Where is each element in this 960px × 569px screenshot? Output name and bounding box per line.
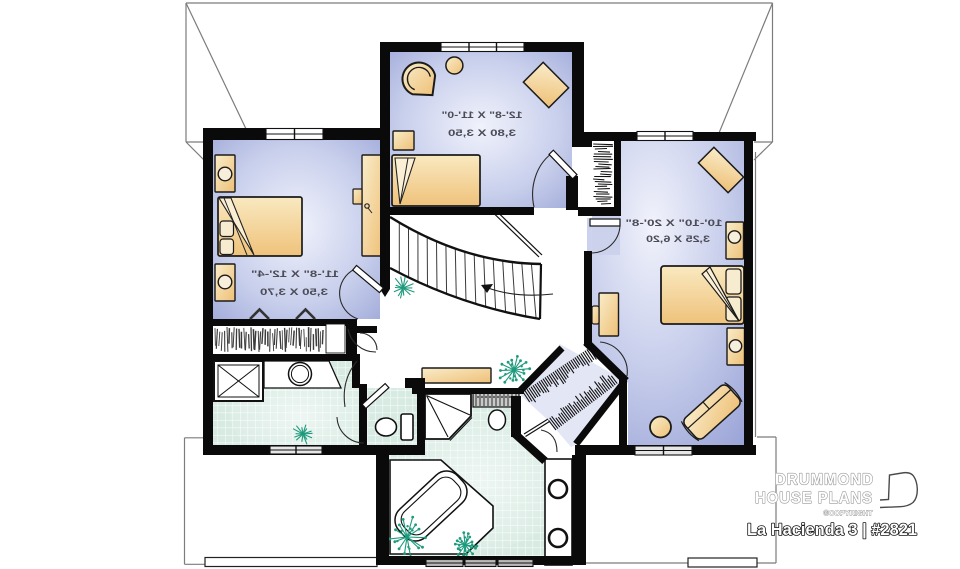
- svg-text:11'-8" X 12'-4": 11'-8" X 12'-4": [251, 269, 339, 280]
- svg-text:©COPYRIGHT: ©COPYRIGHT: [824, 509, 873, 518]
- svg-text:La Hacienda 3 | #2821: La Hacienda 3 | #2821: [747, 521, 917, 539]
- svg-text:12'-8" X 11'-0": 12'-8" X 11'-0": [442, 110, 523, 121]
- svg-text:DRUMMOND: DRUMMOND: [775, 472, 874, 489]
- svg-text:10'-10" X 20'-8": 10'-10" X 20'-8": [626, 218, 723, 229]
- svg-text:3,80 X 3,50: 3,80 X 3,50: [448, 128, 516, 139]
- svg-text:HOUSE PLANS: HOUSE PLANS: [755, 490, 873, 507]
- svg-text:3,50 X 3,70: 3,50 X 3,70: [260, 287, 328, 298]
- svg-text:3,25 X 6,20: 3,25 X 6,20: [646, 234, 710, 245]
